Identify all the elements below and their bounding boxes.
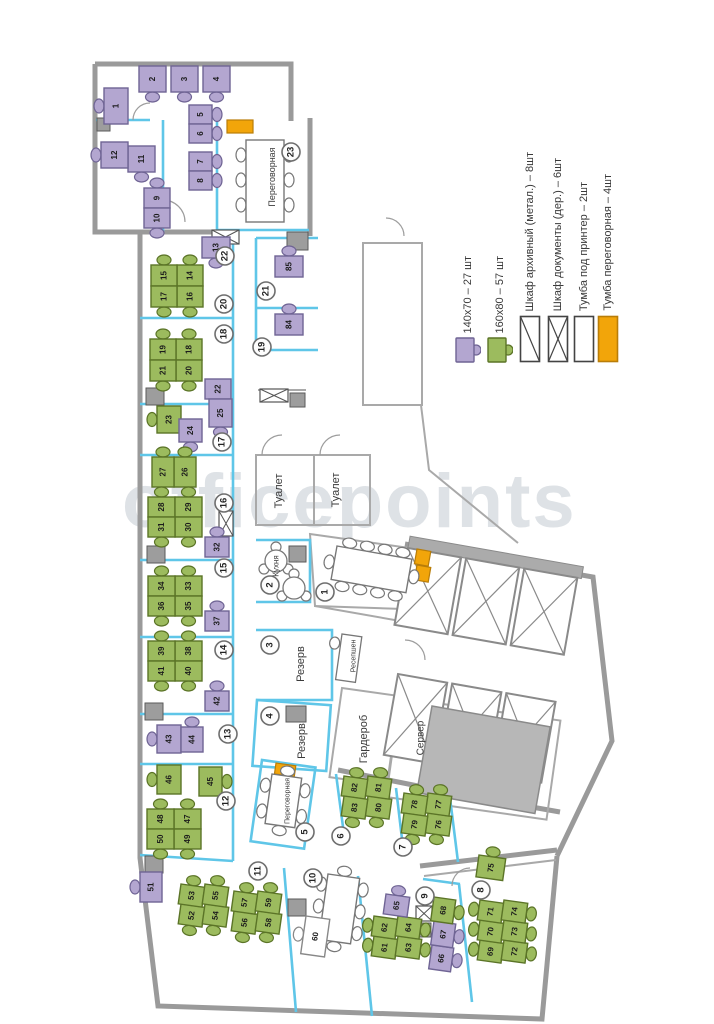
svg-text:18: 18	[219, 329, 230, 340]
desk-number: 71	[485, 906, 495, 917]
chair	[154, 799, 168, 809]
desk-8: 8	[189, 171, 222, 190]
desk-number: 59	[263, 897, 273, 908]
room-number-16: 16	[215, 494, 233, 512]
desk-number: 3	[180, 76, 189, 81]
chair	[185, 717, 199, 727]
desk-number: 74	[509, 906, 519, 917]
legend-item-cabinet-cross: Шкаф документы (дер.) – 6шт	[547, 158, 569, 368]
desk-number: 56	[239, 917, 249, 928]
desk-26: 26	[174, 447, 196, 487]
desk-51: 51	[130, 872, 162, 902]
desk-number: 47	[183, 814, 192, 823]
room-number-11: 11	[249, 862, 267, 880]
chair	[157, 307, 171, 317]
desk-number: 27	[159, 467, 168, 476]
desk-73: 73	[501, 920, 537, 945]
desk-number: 72	[509, 946, 519, 957]
desk-34: 34	[148, 566, 175, 596]
svg-text:15: 15	[219, 562, 230, 573]
desk-number: 10	[153, 213, 162, 222]
partition-wall	[423, 879, 460, 884]
desk-number: 83	[349, 802, 359, 813]
svg-text:20: 20	[219, 299, 230, 310]
desk-18: 18	[176, 329, 202, 360]
desk-number: 53	[186, 890, 196, 901]
desk-11: 11	[128, 146, 155, 182]
desk-number: 85	[285, 262, 294, 271]
door-arc	[133, 103, 150, 120]
desk-number: 54	[210, 910, 220, 921]
desk-44: 44	[181, 717, 203, 752]
desk-21: 21	[150, 360, 176, 391]
chair	[91, 148, 101, 162]
column	[145, 703, 163, 720]
desk-number: 26	[181, 467, 190, 476]
desk-number: 76	[433, 819, 443, 830]
svg-text:12: 12	[221, 796, 232, 807]
cabinet-cross-icon	[547, 315, 569, 368]
chair	[210, 527, 224, 537]
desk-72: 72	[501, 940, 537, 965]
desk-number: 14	[186, 271, 195, 280]
desk-number: 1	[112, 103, 121, 108]
desk-74: 74	[501, 900, 537, 925]
chair	[147, 413, 157, 427]
desk-54: 54	[201, 904, 229, 937]
chair	[147, 732, 157, 746]
desk-35: 35	[175, 596, 202, 626]
door-arc	[405, 640, 425, 660]
room-label-meeting-23: Переговорная	[267, 147, 277, 206]
desk-number: 22	[214, 384, 223, 393]
chair	[94, 99, 104, 113]
desk-number: 44	[188, 735, 197, 744]
legend-item-cabinet-diagonal: Шкаф архивный (метал.) – 8шт	[519, 152, 541, 369]
desk-140-icon	[455, 337, 481, 368]
desk-42: 42	[205, 681, 229, 711]
floor-plan-page: officepoints 123456789101112131415161718…	[0, 0, 714, 1024]
desk-number: 41	[157, 666, 166, 675]
column	[147, 546, 165, 563]
chair	[157, 255, 171, 265]
desk-number: 9	[153, 195, 162, 200]
desk-number: 17	[160, 292, 169, 301]
desk-27: 27	[152, 447, 174, 487]
svg-text:10: 10	[308, 873, 319, 884]
desk-19: 19	[150, 329, 176, 360]
desk-number: 61	[379, 942, 389, 953]
chair	[182, 381, 196, 391]
chair	[181, 799, 195, 809]
chair	[154, 849, 168, 859]
desk-number: 25	[216, 408, 225, 417]
legend-label: Шкаф документы (дер.) – 6шт	[552, 158, 564, 311]
desk-number: 12	[110, 150, 119, 159]
svg-text:21: 21	[261, 285, 272, 296]
room-number-14: 14	[215, 641, 233, 659]
desk-33: 33	[175, 566, 202, 596]
desk-number: 58	[263, 917, 273, 928]
desk-6: 6	[189, 124, 222, 143]
cabinet-diagonal-icon	[519, 315, 541, 368]
room-number-2: 2	[261, 576, 279, 594]
desk-number: 62	[379, 922, 389, 933]
room-label-reserve-3: Резерв	[295, 646, 307, 682]
desk-16: 16	[177, 286, 203, 317]
chair	[135, 172, 149, 182]
desk-number: 20	[185, 366, 194, 375]
room-number-18: 18	[215, 325, 233, 343]
floor-plan-drawing: 1234567891011121314151617181920212223242…	[0, 0, 714, 1024]
legend-label: Тумба переговорная – 4шт	[602, 174, 614, 311]
legend-item-cabinet-plain: Тумба под принтер – 2шт	[573, 182, 595, 368]
room-number-19: 19	[253, 338, 271, 356]
chair	[182, 616, 196, 626]
svg-text:8: 8	[476, 887, 487, 892]
room-number-15: 15	[215, 559, 233, 577]
desk-46: 46	[147, 765, 181, 794]
desk-15: 15	[151, 255, 177, 286]
svg-text:19: 19	[257, 342, 268, 353]
desk-52: 52	[177, 904, 205, 937]
desk-31: 31	[148, 517, 175, 547]
desk-number: 48	[156, 814, 165, 823]
desk-56: 56	[230, 911, 258, 944]
svg-text:1: 1	[320, 589, 331, 595]
desk-number: 30	[184, 522, 193, 531]
chair	[183, 255, 197, 265]
chair	[182, 329, 196, 339]
desk-number: 15	[160, 271, 169, 280]
chair	[181, 849, 195, 859]
desk-39: 39	[148, 631, 175, 661]
desk-number: 43	[165, 734, 174, 743]
svg-text:4: 4	[265, 713, 276, 719]
room-number-7: 7	[394, 838, 412, 856]
room-label-kitchen: Кухня	[272, 555, 281, 576]
room-number-13: 13	[219, 725, 237, 743]
chair	[210, 681, 224, 691]
chair	[182, 487, 196, 497]
inner-wall	[421, 405, 518, 543]
chair	[182, 566, 196, 576]
meeting-cabinet-orange	[227, 120, 253, 133]
desk-number: 2	[148, 76, 157, 81]
inner-wall	[363, 243, 422, 405]
desk-59: 59	[255, 881, 283, 914]
chair	[147, 773, 157, 787]
svg-text:17: 17	[217, 437, 228, 448]
legend-label: Тумба под принтер – 2шт	[578, 182, 590, 311]
desk-number: 46	[165, 775, 174, 784]
desk-number: 82	[349, 782, 359, 793]
chair	[182, 681, 196, 691]
svg-text:7: 7	[398, 844, 409, 849]
desk-number: 75	[486, 862, 496, 873]
desk-number: 70	[485, 926, 495, 937]
desk-28: 28	[148, 487, 175, 517]
desk-37: 37	[205, 601, 229, 631]
desk-number: 73	[509, 926, 519, 937]
chair	[155, 681, 169, 691]
desk-85: 85	[275, 246, 303, 277]
desk-83: 83	[340, 796, 368, 829]
desk-number: 51	[147, 882, 156, 891]
room-number-4: 4	[261, 707, 279, 725]
svg-text:6: 6	[336, 833, 347, 838]
desk-9: 9	[144, 178, 170, 208]
desk-number: 36	[157, 601, 166, 610]
desk-number: 35	[184, 601, 193, 610]
legend: 140х70 – 27 шт160х80 – 57 штШкаф архивны…	[448, 162, 663, 368]
chair	[282, 304, 296, 314]
desk-number: 65	[391, 900, 401, 911]
column	[288, 899, 306, 916]
room-number-23: 23	[282, 143, 300, 161]
chair	[282, 246, 296, 256]
desk-number: 79	[409, 819, 419, 830]
room-number-6: 6	[332, 827, 350, 845]
door-arc	[386, 218, 404, 236]
legend-label: Шкаф архивный (метал.) – 8шт	[524, 152, 536, 312]
svg-text:14: 14	[219, 644, 230, 655]
desk-number: 37	[213, 616, 222, 625]
desk-number: 11	[137, 154, 146, 163]
svg-text:9: 9	[420, 893, 431, 898]
chair	[178, 92, 192, 102]
chair	[156, 447, 170, 457]
svg-text:13: 13	[223, 729, 234, 740]
chair	[182, 537, 196, 547]
svg-text:22: 22	[220, 251, 231, 262]
door-arc	[262, 435, 282, 455]
room-number-17: 17	[213, 433, 231, 451]
room-number-22: 22	[216, 247, 234, 265]
chair	[212, 155, 222, 169]
room-number-5: 5	[296, 823, 314, 841]
meeting-cabinet-orange	[414, 549, 430, 566]
column	[289, 546, 306, 562]
desk-40: 40	[175, 661, 202, 691]
desk-number: 49	[183, 834, 192, 843]
desk-number: 40	[184, 666, 193, 675]
chair	[178, 447, 192, 457]
desk-30: 30	[175, 517, 202, 547]
desk-number: 77	[433, 799, 443, 810]
room-number-10: 10	[304, 869, 322, 887]
chair	[150, 178, 164, 188]
chair	[212, 127, 222, 141]
desk-number: 45	[206, 777, 215, 786]
desk-23: 23	[147, 406, 181, 433]
desk-number: 84	[285, 320, 294, 329]
room-label-server: Сервер	[416, 720, 427, 755]
desk-7: 7	[189, 152, 222, 171]
desk-number: 19	[159, 345, 168, 354]
svg-text:2: 2	[265, 582, 276, 587]
room-number-8: 8	[472, 881, 490, 899]
desk-number: 29	[184, 502, 193, 511]
desk-number: 24	[186, 426, 195, 435]
chair	[183, 307, 197, 317]
svg-text:11: 11	[253, 865, 264, 876]
cabinet-orange-icon	[597, 315, 619, 368]
desk-number: 34	[157, 581, 166, 590]
desk-number: 23	[165, 415, 174, 424]
desk-number: 69	[485, 946, 495, 957]
svg-text:23: 23	[286, 147, 297, 158]
room-number-12: 12	[217, 792, 235, 810]
svg-text:16: 16	[219, 498, 230, 509]
chair	[146, 92, 160, 102]
room-label-wardrobe: Гардероб	[358, 715, 370, 763]
desk-number: 68	[438, 905, 448, 916]
desk-number: 57	[239, 897, 249, 908]
desk-number: 38	[184, 646, 193, 655]
kitchen-table	[277, 569, 311, 601]
legend-item-desk-140: 140х70 – 27 шт	[455, 256, 481, 368]
desk-5: 5	[189, 105, 222, 124]
desk-number: 18	[185, 345, 194, 354]
room-number-21: 21	[257, 282, 275, 300]
chair	[210, 92, 224, 102]
svg-text:3: 3	[265, 642, 276, 647]
desk-number: 4	[212, 76, 221, 81]
room-number-20: 20	[215, 295, 233, 313]
legend-label: 140х70 – 27 шт	[462, 256, 474, 333]
door-arc	[320, 435, 340, 455]
desk-number: 50	[156, 834, 165, 843]
desk-number: 5	[196, 112, 205, 117]
room-number-3: 3	[261, 636, 279, 654]
desk-2: 2	[139, 66, 166, 102]
desk-160-icon	[487, 337, 513, 368]
desk-4: 4	[203, 66, 230, 102]
chair	[130, 880, 140, 894]
legend-item-cabinet-orange: Тумба переговорная – 4шт	[597, 174, 619, 368]
desk-number: 55	[210, 890, 220, 901]
desk-number: 21	[159, 366, 168, 375]
chair	[156, 329, 170, 339]
chair	[150, 228, 164, 238]
desk-55: 55	[202, 874, 230, 907]
cabinet-plain-icon	[573, 315, 595, 368]
desk-36: 36	[148, 596, 175, 626]
document-cabinet	[260, 389, 288, 402]
chair	[212, 174, 222, 188]
desk-number: 63	[403, 942, 413, 953]
desk-number: 6	[196, 131, 205, 136]
chair	[155, 616, 169, 626]
desk-number: 31	[157, 522, 166, 531]
chair	[212, 108, 222, 122]
desk-66: 66	[429, 945, 464, 973]
room-label-toilet-b: Туалет	[330, 473, 342, 508]
desk-62: 62	[361, 915, 397, 940]
desk-75: 75	[476, 845, 507, 880]
desk-number: 60	[310, 931, 320, 942]
desk-41: 41	[148, 661, 175, 691]
desk-number: 32	[213, 542, 222, 551]
desk-58: 58	[254, 911, 282, 944]
desk-47: 47	[174, 799, 201, 829]
desk-number: 52	[186, 910, 196, 921]
room-number-9: 9	[416, 887, 434, 905]
desk-49: 49	[174, 829, 201, 859]
desk-number: 28	[157, 502, 166, 511]
desk-60: 60	[291, 915, 330, 957]
desk-67: 67	[431, 921, 466, 949]
desk-29: 29	[175, 487, 202, 517]
desk-number: 39	[157, 646, 166, 655]
desk-number: 16	[186, 292, 195, 301]
room-label-reserve-4: Резерв	[296, 723, 308, 759]
desk-number: 78	[409, 799, 419, 810]
chair	[155, 566, 169, 576]
desk-number: 81	[373, 782, 383, 793]
room-label-reception: Ресепшен	[351, 639, 358, 672]
desk-25: 25	[209, 399, 232, 437]
desk-number: 66	[436, 953, 446, 964]
desk-14: 14	[177, 255, 203, 286]
chair	[155, 487, 169, 497]
legend-item-desk-160: 160х80 – 57 шт	[487, 256, 513, 368]
chair	[155, 537, 169, 547]
desk-number: 7	[196, 159, 205, 164]
desk-number: 67	[438, 929, 448, 940]
desk-number: 42	[213, 696, 222, 705]
room-label-toilet-a: Туалет	[273, 474, 285, 509]
chair	[156, 381, 170, 391]
desk-48: 48	[147, 799, 174, 829]
desk-38: 38	[175, 631, 202, 661]
chair	[155, 631, 169, 641]
desk-number: 64	[403, 922, 413, 933]
desk-20: 20	[176, 360, 202, 391]
column	[286, 706, 306, 722]
chair	[182, 631, 196, 641]
chair	[210, 601, 224, 611]
chair	[222, 775, 232, 789]
column	[290, 393, 305, 407]
desk-65: 65	[383, 884, 411, 917]
svg-text:5: 5	[300, 829, 311, 835]
partition-wall	[284, 868, 296, 1012]
room-label-meeting-5: Переговорная	[285, 778, 292, 824]
desk-3: 3	[171, 66, 198, 102]
room-number-1: 1	[316, 583, 334, 601]
desk-17: 17	[151, 286, 177, 317]
desk-63: 63	[395, 936, 431, 961]
desk-number: 80	[373, 802, 383, 813]
desk-number: 8	[196, 178, 205, 183]
desk-71: 71	[467, 899, 503, 924]
legend-label: 160х80 – 57 шт	[494, 256, 506, 333]
desk-number: 33	[184, 581, 193, 590]
desk-43: 43	[147, 725, 181, 753]
